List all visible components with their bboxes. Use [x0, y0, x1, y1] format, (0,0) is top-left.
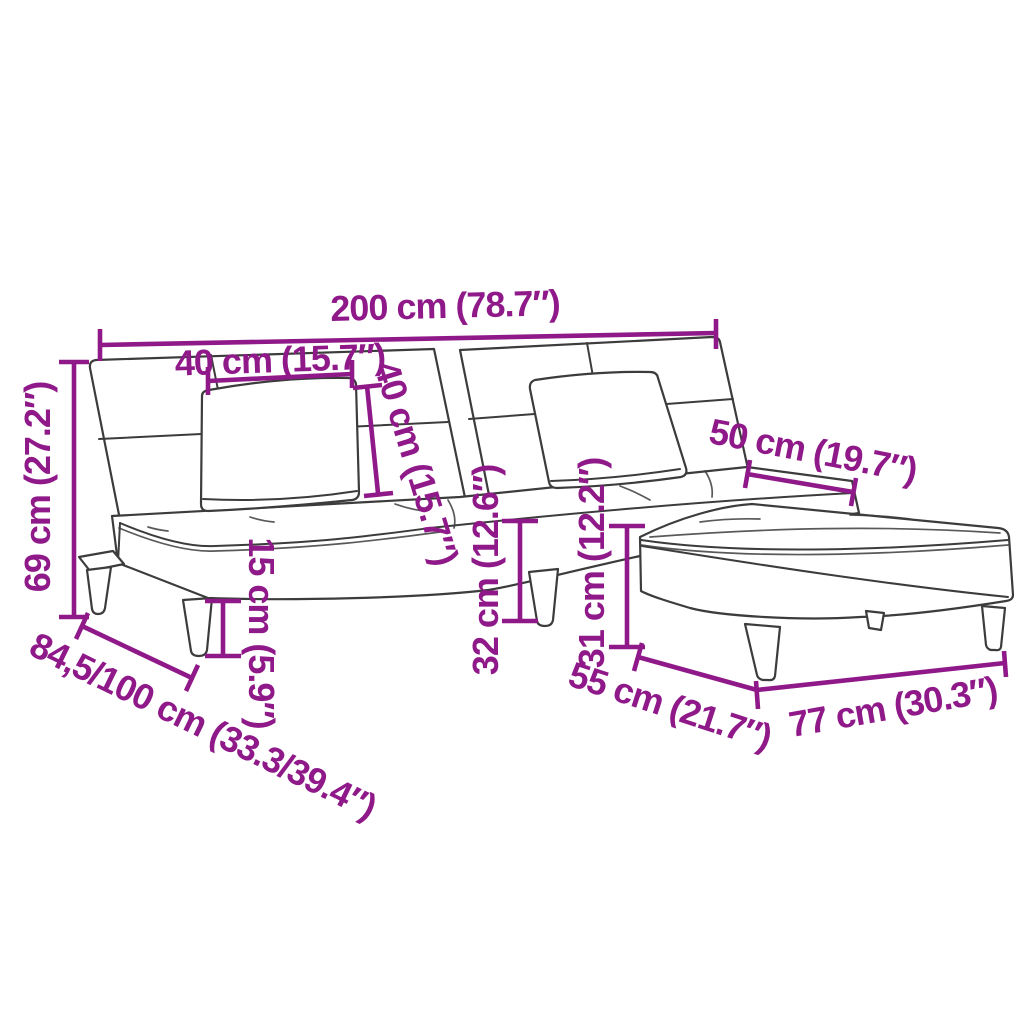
sofa-leg-front-left [183, 598, 212, 656]
dim-label-footstool-height: 31 cm (12.2″) [574, 458, 610, 668]
dim-label-leg-height: 15 cm (5.9″) [243, 537, 279, 728]
footstool-leg-back-left [866, 611, 884, 630]
sofa-leg-middle [529, 569, 558, 626]
dim-label-seat-height: 32 cm (12.6″) [468, 465, 504, 675]
sofa-leg-back-left [87, 567, 111, 614]
footstool-leg-front-right [982, 606, 1005, 650]
line-art-canvas [0, 0, 1024, 1024]
dim-label-backrest-height: 69 cm (27.2″) [20, 382, 56, 592]
dim-label-overall-width: 200 cm (78.7″) [330, 285, 560, 327]
dim-label-pillow-width: 40 cm (15.7″) [174, 338, 386, 381]
dimension-line-backrest-height [59, 362, 89, 617]
footstool-leg-front-left [745, 624, 780, 680]
footstool-line-art [640, 504, 1013, 680]
dimension-diagram: 200 cm (78.7″) 40 cm (15.7″) 40 cm (15.7… [0, 0, 1024, 1024]
sofa-pillow-left [201, 378, 359, 511]
footstool-body [640, 504, 1013, 618]
